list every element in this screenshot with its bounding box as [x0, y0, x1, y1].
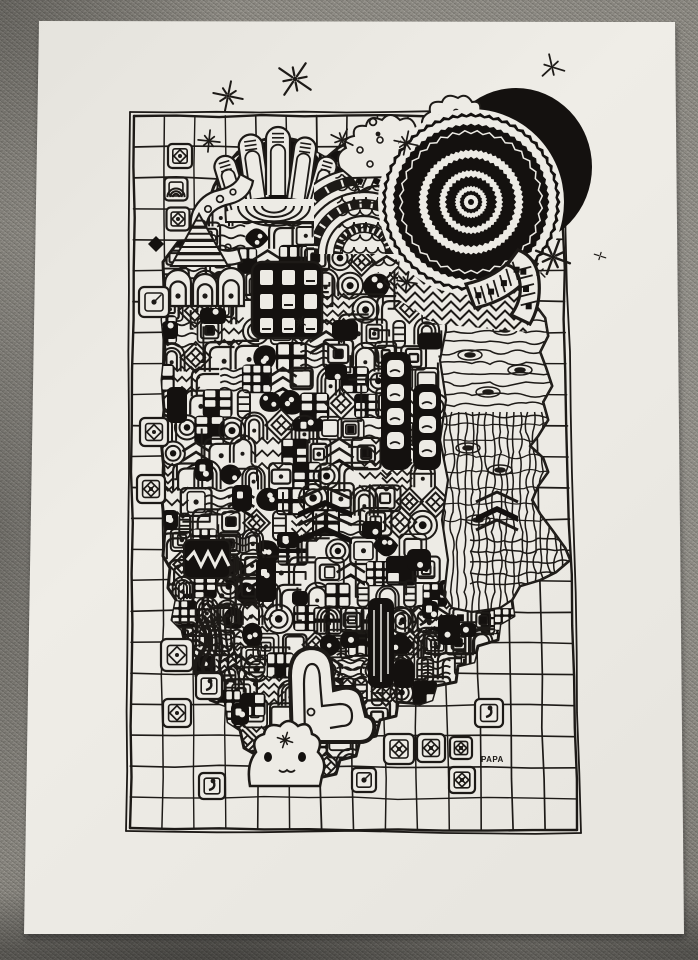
svg-text:PAPA: PAPA: [481, 755, 504, 764]
